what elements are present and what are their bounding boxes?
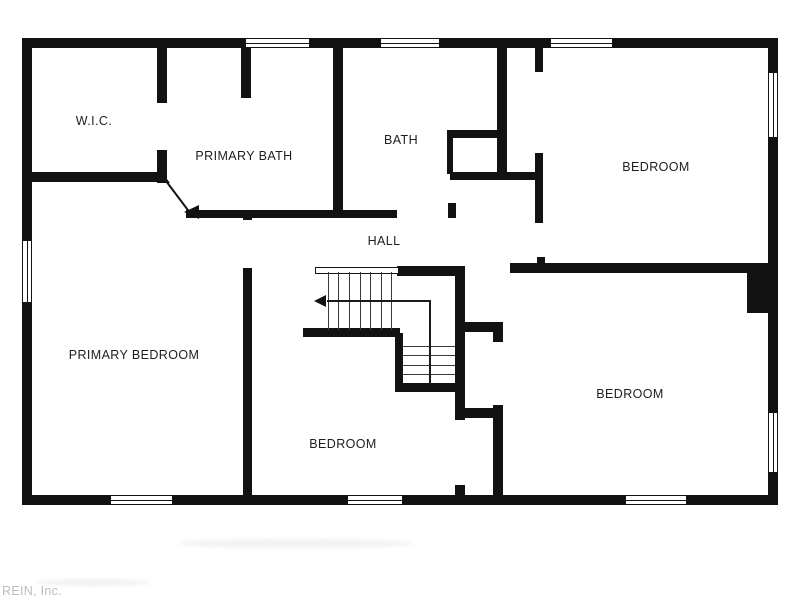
- wall-wic-bottom: [22, 172, 162, 182]
- wall-stairs-bottom-wall: [303, 328, 400, 337]
- window-pane-line: [348, 500, 402, 501]
- watermark-smudge-0: [177, 539, 413, 548]
- wall-chimney: [747, 271, 777, 313]
- wall-hall-top: [186, 210, 397, 218]
- wall-primary-hall-nub: [243, 210, 252, 220]
- room-label-wic: W.I.C.: [76, 114, 112, 128]
- stair-turn-line: [429, 300, 431, 384]
- wall-hall-stub: [448, 203, 456, 218]
- window-pane-line: [551, 43, 612, 44]
- window-right-window-1: [768, 72, 778, 138]
- window-bottom-window-1: [110, 495, 173, 505]
- room-label-bedroom-ne: BEDROOM: [622, 160, 689, 174]
- room-label-bedroom-s: BEDROOM: [309, 437, 376, 451]
- wall-bath-nook-left: [447, 138, 453, 174]
- wall-stairs-top-wall: [397, 266, 463, 276]
- wall-ne-bedroom-left-lower: [535, 153, 543, 223]
- wall-bath-shower-stub: [241, 48, 251, 98]
- wall-primarybath-bath-divider: [333, 48, 343, 212]
- wall-se-bedroom-left: [493, 405, 503, 495]
- window-pane-line: [381, 43, 439, 44]
- room-label-primary-bath: PRIMARY BATH: [195, 149, 292, 163]
- window-bottom-window-3: [625, 495, 687, 505]
- wall-stairwell-right: [455, 266, 465, 420]
- wall-closet-bottom-wall: [450, 172, 543, 180]
- room-label-bedroom-se: BEDROOM: [596, 387, 663, 401]
- wall-stairs-lower-bottom: [395, 383, 463, 392]
- room-label-primary-bedroom: PRIMARY BEDROOM: [69, 348, 200, 362]
- stair-run-line: [327, 300, 430, 302]
- wall-closet-se-right-nub: [493, 328, 503, 342]
- window-pane-line: [246, 43, 309, 44]
- window-pane-line: [626, 500, 686, 501]
- room-label-bath: BATH: [384, 133, 418, 147]
- wall-s-bedroom-door-nub: [455, 485, 465, 497]
- window-pane-line: [27, 241, 28, 302]
- window-top-window-1: [245, 38, 310, 48]
- window-top-window-2: [380, 38, 440, 48]
- window-pane-line: [111, 500, 172, 501]
- window-left-window-1: [22, 240, 32, 303]
- wall-primary-s-divider: [243, 268, 252, 505]
- window-pane-line: [773, 73, 774, 137]
- angled-wall: [163, 178, 190, 213]
- wall-right-bedrooms-divider: [510, 263, 768, 273]
- wall-bath-nook-top: [447, 130, 499, 138]
- stair-direction-arrow: [314, 295, 326, 307]
- window-pane-line: [773, 413, 774, 472]
- floor-plan: W.I.C.PRIMARY BATHBATHBEDROOMHALLPRIMARY…: [0, 0, 800, 600]
- window-top-window-3: [550, 38, 613, 48]
- window-bottom-window-2: [347, 495, 403, 505]
- room-label-hall: HALL: [368, 234, 401, 248]
- watermark-text: REIN, Inc.: [2, 584, 62, 598]
- window-right-window-2: [768, 412, 778, 473]
- wall-wic-right-upper: [157, 48, 167, 103]
- wall-ne-bedroom-left-upper: [535, 48, 543, 72]
- wall-bath-right: [497, 48, 507, 174]
